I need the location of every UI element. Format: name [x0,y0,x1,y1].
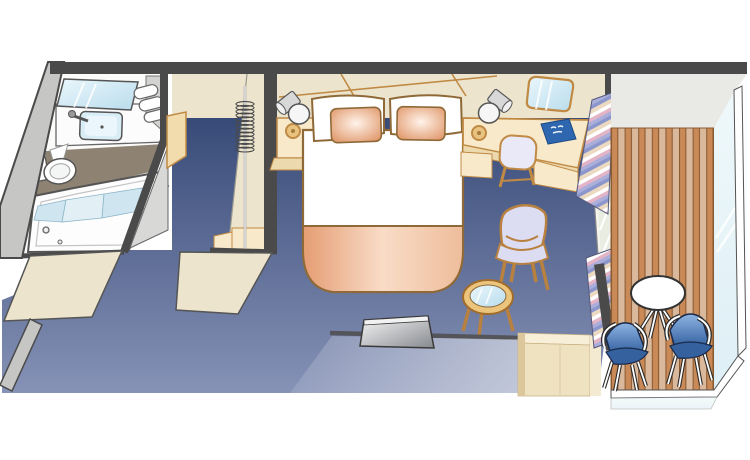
desk-left-panel [461,152,492,178]
tv-icon [360,316,434,348]
closet-step-shelf-2 [232,228,268,250]
queen-bed [303,95,463,292]
low-cabinet [518,333,601,396]
foot-blanket [303,226,463,292]
stateroom-floorplan-diagram [0,0,750,460]
top-exterior-wall [50,62,747,74]
accent-pillow-right [397,107,446,141]
wall-closet-bedroom [264,62,277,252]
desk-mirror-icon [527,77,573,111]
accent-pillow-left [330,107,381,143]
vanity-mirror-icon [57,79,138,110]
balcony [603,74,747,409]
railing-glass-bottom [611,397,717,409]
stateroom-floorplan [0,0,750,460]
